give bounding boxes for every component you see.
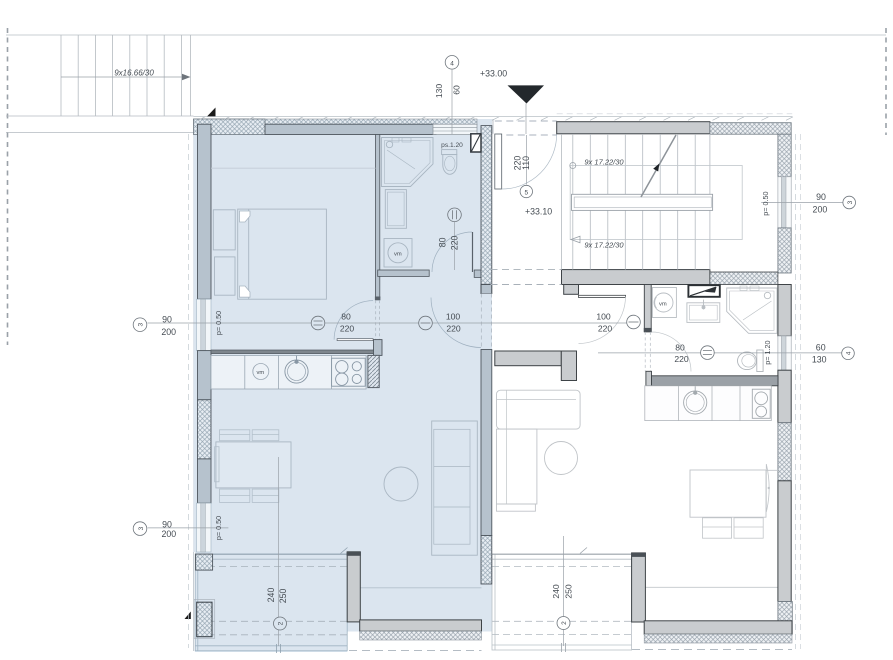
svg-text:5: 5 (524, 189, 528, 196)
svg-text:220: 220 (340, 324, 355, 334)
svg-text:80: 80 (341, 312, 351, 322)
svg-text:80: 80 (675, 343, 685, 353)
svg-text:p= 0.50: p= 0.50 (214, 516, 223, 540)
svg-text:240: 240 (551, 584, 561, 599)
svg-text:130: 130 (812, 355, 827, 365)
svg-text:90: 90 (162, 520, 172, 530)
svg-text:90: 90 (162, 315, 172, 325)
svg-text:100: 100 (446, 312, 461, 322)
svg-text:+33.10: +33.10 (525, 207, 552, 217)
svg-text:220: 220 (512, 156, 522, 171)
svg-text:vm: vm (257, 370, 265, 376)
svg-text:9x 17.22/30: 9x 17.22/30 (584, 158, 624, 167)
svg-text:p= 0.50: p= 0.50 (761, 192, 770, 216)
svg-text:3: 3 (138, 526, 145, 530)
svg-text:4: 4 (450, 60, 454, 67)
svg-text:250: 250 (278, 588, 288, 603)
svg-text:3: 3 (138, 323, 145, 327)
svg-text:90: 90 (816, 192, 826, 202)
svg-text:p= 0.50: p= 0.50 (214, 311, 223, 335)
svg-text:220: 220 (446, 324, 461, 334)
svg-text:vm: vm (394, 252, 402, 258)
svg-text:9x16.66/30: 9x16.66/30 (114, 69, 154, 78)
svg-text:200: 200 (813, 205, 828, 215)
svg-text:110: 110 (521, 156, 531, 170)
svg-text:220: 220 (674, 354, 689, 364)
svg-text:vm: vm (659, 301, 667, 307)
svg-text:p= 1.20: p= 1.20 (763, 341, 772, 365)
svg-text:9x 17.22/30: 9x 17.22/30 (584, 241, 624, 250)
svg-text:ps.1.20: ps.1.20 (441, 142, 463, 149)
svg-text:2: 2 (278, 621, 285, 625)
svg-text:130: 130 (434, 84, 444, 99)
svg-text:200: 200 (161, 529, 176, 539)
svg-text:220: 220 (450, 235, 460, 250)
svg-text:240: 240 (266, 588, 276, 603)
svg-text:80: 80 (438, 237, 448, 247)
svg-text:250: 250 (564, 584, 574, 599)
svg-text:220: 220 (598, 324, 613, 334)
svg-text:200: 200 (161, 327, 176, 337)
svg-text:60: 60 (816, 343, 826, 353)
svg-text:4: 4 (846, 351, 853, 355)
svg-text:100: 100 (596, 312, 611, 322)
svg-text:+33.00: +33.00 (480, 69, 507, 79)
svg-text:3: 3 (847, 200, 854, 204)
svg-text:60: 60 (452, 85, 462, 95)
svg-text:2: 2 (561, 621, 568, 625)
